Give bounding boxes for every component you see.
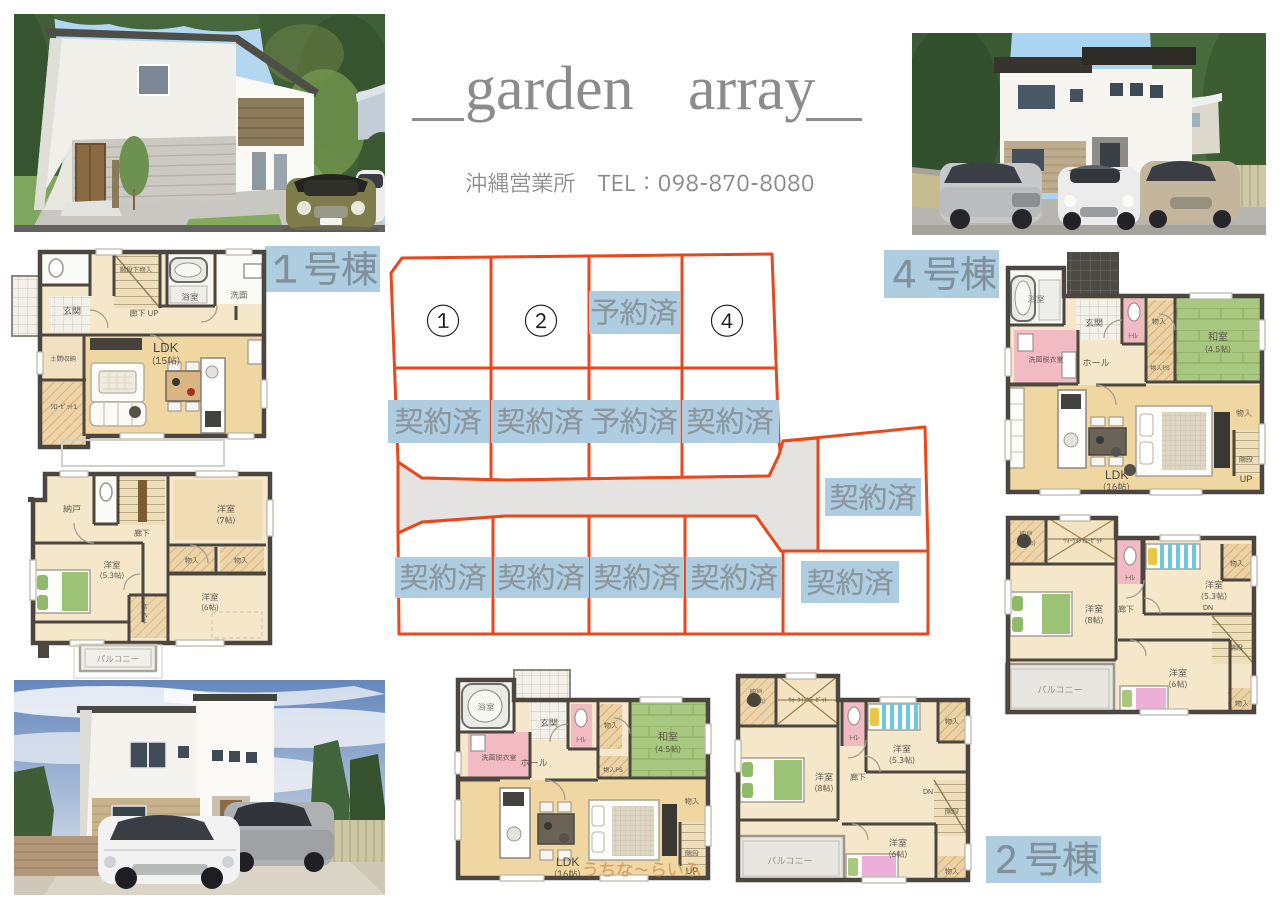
svg-text:DN: DN bbox=[1203, 605, 1213, 612]
svg-text:LDK: LDK bbox=[1105, 468, 1128, 482]
svg-text:LDK: LDK bbox=[153, 340, 179, 355]
svg-text:LDK: LDK bbox=[556, 855, 579, 869]
svg-text:DN: DN bbox=[923, 789, 933, 796]
svg-text:UP: UP bbox=[1240, 474, 1253, 484]
